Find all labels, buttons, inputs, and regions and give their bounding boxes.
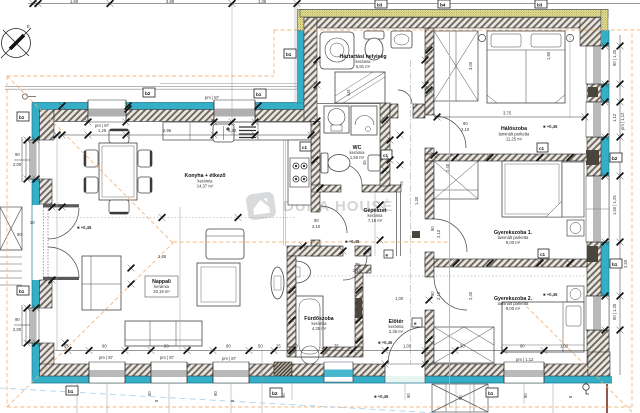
svg-text:1,30: 1,30	[414, 196, 419, 205]
svg-text:c1: c1	[302, 145, 308, 150]
svg-text:■ +0,45: ■ +0,45	[378, 340, 393, 345]
svg-text:c1: c1	[540, 252, 546, 257]
svg-text:90: 90	[458, 395, 463, 400]
svg-text:pm | 87: pm | 87	[222, 356, 237, 361]
svg-text:1,60: 1,60	[70, 0, 79, 4]
svg-text:3,75: 3,75	[503, 111, 512, 116]
svg-text:b1: b1	[488, 391, 494, 396]
svg-text:1,35: 1,35	[258, 0, 267, 4]
svg-text:9,00 m²: 9,00 m²	[506, 240, 521, 245]
svg-text:b2: b2	[145, 91, 151, 96]
svg-text:20,19 m²: 20,19 m²	[153, 289, 170, 294]
svg-text:90: 90	[406, 393, 411, 398]
svg-text:2,10: 2,10	[353, 268, 362, 273]
svg-text:b1: b1	[256, 92, 262, 97]
svg-text:25: 25	[276, 344, 281, 349]
svg-text:7,18 m²: 7,18 m²	[368, 218, 383, 223]
svg-text:®: ®	[385, 198, 389, 205]
svg-text:2,40: 2,40	[445, 163, 450, 172]
svg-text:30: 30	[30, 220, 35, 225]
svg-text:3,88: 3,88	[166, 0, 175, 4]
svg-text:90: 90	[17, 232, 22, 237]
svg-text:5,81 m²: 5,81 m²	[356, 64, 371, 69]
svg-text:45: 45	[362, 160, 367, 165]
svg-text:11,25 m²: 11,25 m²	[506, 137, 523, 142]
svg-text:pm | 1,12: pm | 1,12	[620, 112, 625, 130]
svg-text:3,00: 3,00	[468, 61, 473, 70]
svg-text:c1: c1	[539, 146, 545, 151]
svg-text:2,00: 2,00	[13, 162, 22, 167]
svg-text:b3: b3	[377, 3, 383, 8]
svg-text:b3: b3	[537, 3, 543, 8]
svg-text:90: 90	[430, 291, 435, 296]
svg-text:e: e	[414, 321, 417, 326]
svg-text:1,50 | 1,25: 1,50 | 1,25	[612, 195, 617, 215]
svg-text:szd: szd	[346, 89, 351, 96]
svg-text:e: e	[386, 253, 389, 258]
svg-text:1,00: 1,00	[395, 296, 404, 301]
svg-text:75: 75	[334, 344, 339, 349]
svg-text:90: 90	[314, 218, 319, 223]
svg-text:90: 90	[102, 344, 107, 349]
svg-text:pm | 87: pm | 87	[95, 123, 110, 128]
svg-text:c1: c1	[383, 153, 389, 158]
svg-text:1,50 m²: 1,50 m²	[350, 155, 365, 160]
svg-text:pm | 87: pm | 87	[99, 355, 114, 360]
svg-text:b1: b1	[286, 52, 292, 57]
svg-text:2,36 m²: 2,36 m²	[389, 329, 404, 334]
svg-text:90: 90	[463, 121, 468, 126]
svg-text:2,50: 2,50	[623, 259, 628, 268]
svg-text:2,10: 2,10	[461, 127, 470, 132]
svg-text:1,30: 1,30	[228, 128, 237, 133]
svg-text:■ +0,45: ■ +0,45	[345, 239, 360, 244]
svg-text:■ +0,45: ■ +0,45	[543, 124, 558, 129]
svg-text:14,37 m²: 14,37 m²	[197, 184, 214, 189]
svg-text:b1: b1	[19, 115, 25, 120]
svg-text:■ +0,45: ■ +0,45	[543, 292, 558, 297]
svg-text:pm | 87: pm | 87	[160, 355, 175, 360]
svg-text:2,10: 2,10	[436, 291, 441, 300]
svg-text:9,00 m²: 9,00 m²	[506, 306, 521, 311]
svg-text:90: 90	[15, 152, 20, 157]
svg-text:b1: b1	[612, 262, 618, 267]
svg-text:■ +0,45: ■ +0,45	[77, 225, 92, 230]
svg-text:pm | 87: pm | 87	[205, 95, 220, 100]
svg-text:90: 90	[523, 393, 528, 398]
svg-text:2,00: 2,00	[13, 327, 22, 332]
svg-text:4,35 m²: 4,35 m²	[312, 326, 327, 331]
svg-text:pm | 1,12: pm | 1,12	[516, 357, 534, 362]
svg-text:90: 90	[164, 344, 169, 349]
svg-text:1,25: 1,25	[98, 128, 107, 133]
svg-text:75: 75	[355, 262, 360, 267]
svg-text:50: 50	[258, 344, 263, 349]
svg-text:90 | 1,25: 90 | 1,25	[612, 303, 617, 320]
svg-text:b2: b2	[612, 156, 618, 161]
svg-text:É: É	[27, 24, 30, 29]
svg-text:■ +0,45: ■ +0,45	[374, 394, 389, 399]
svg-text:90: 90	[213, 391, 218, 396]
svg-text:1,02: 1,02	[560, 344, 569, 349]
svg-text:2,95: 2,95	[163, 128, 172, 133]
svg-text:2,10: 2,10	[312, 224, 321, 229]
svg-text:b1: b1	[68, 389, 74, 394]
svg-text:90 | 1,25: 90 | 1,25	[612, 49, 617, 66]
svg-text:90: 90	[520, 344, 525, 349]
svg-text:b2: b2	[272, 391, 278, 396]
svg-text:90: 90	[226, 344, 231, 349]
svg-text:2,40: 2,40	[468, 291, 473, 300]
svg-text:90: 90	[460, 344, 465, 349]
svg-text:1,00: 1,00	[403, 344, 412, 349]
svg-text:2,10: 2,10	[436, 229, 441, 238]
svg-text:90: 90	[147, 391, 152, 396]
svg-text:75: 75	[399, 181, 404, 186]
svg-text:1,65: 1,65	[158, 254, 167, 259]
svg-text:b4: b4	[440, 3, 446, 8]
svg-text:90: 90	[15, 317, 20, 322]
svg-text:1,12: 1,12	[612, 113, 617, 122]
svg-text:b1: b1	[19, 289, 25, 294]
svg-text:1,90: 1,90	[546, 51, 551, 60]
svg-text:90: 90	[430, 226, 435, 231]
